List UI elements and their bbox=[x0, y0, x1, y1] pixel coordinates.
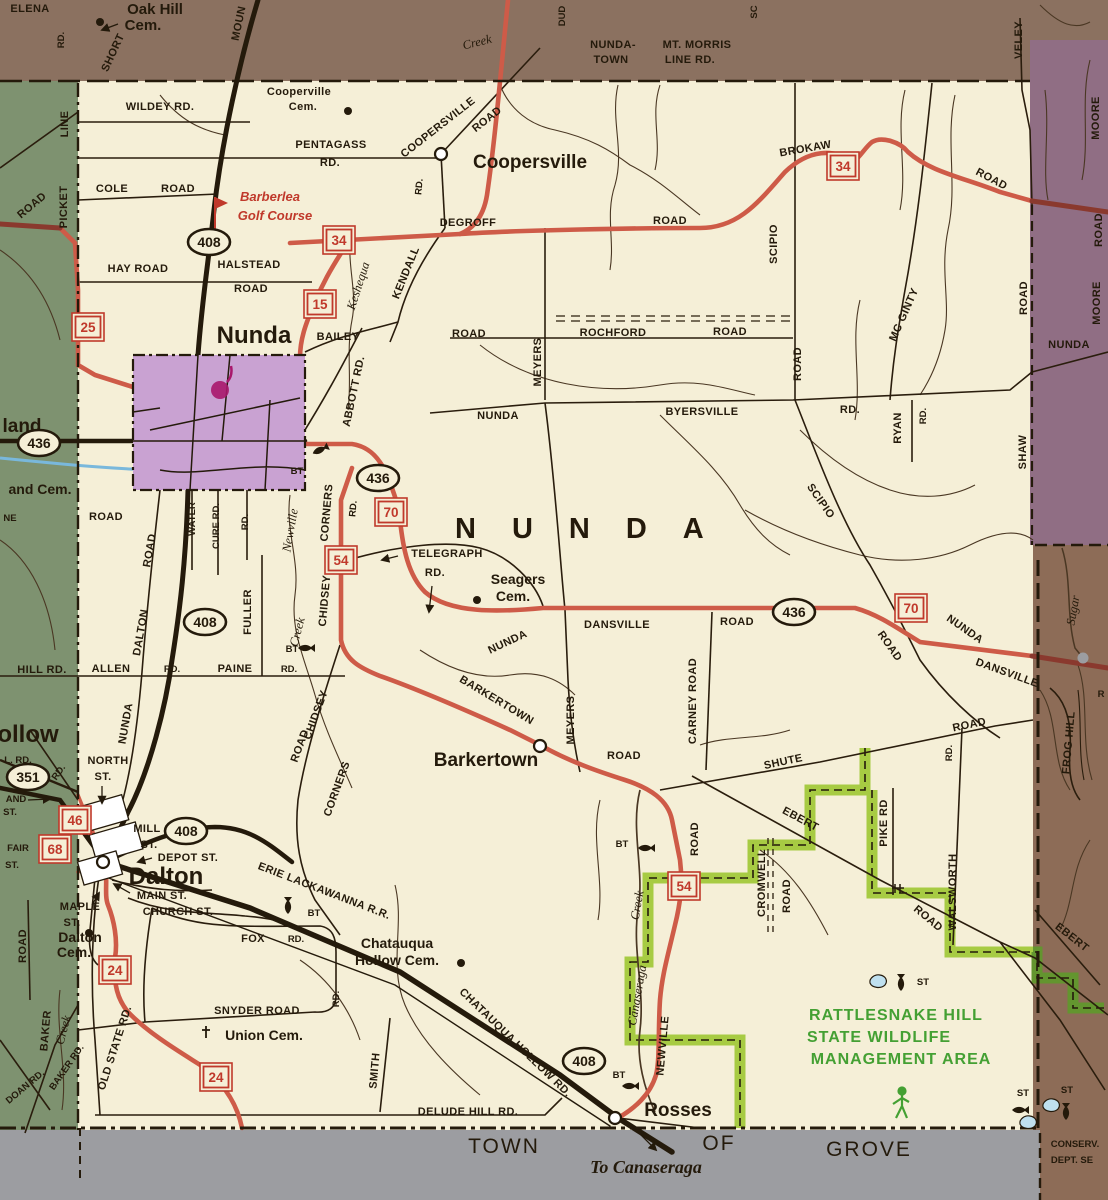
map-label-road: ROAD bbox=[792, 347, 804, 381]
map-label-union-cem: Union Cem. bbox=[225, 1027, 303, 1043]
map-label-allen: ALLEN bbox=[92, 663, 131, 675]
map-label-rd: RD. bbox=[281, 664, 297, 675]
shield-number: 408 bbox=[197, 234, 221, 250]
shield-number: 46 bbox=[67, 813, 83, 828]
route-shield-25: 25 bbox=[72, 313, 104, 341]
map-label-dansville: DANSVILLE bbox=[584, 619, 650, 631]
map-label-nunda: NUNDA bbox=[477, 410, 519, 422]
map-label-road: ROAD bbox=[161, 183, 195, 195]
map-label-dalton: Dalton bbox=[129, 863, 204, 890]
map-canvas: ELENARD.Oak HillCem.SHORTMOUNCreekDUDNUN… bbox=[0, 0, 1108, 1200]
map-label-veley: VELEY bbox=[1013, 21, 1025, 59]
region-east-brown bbox=[1033, 545, 1108, 1133]
map-label-scipio: SCIPIO bbox=[768, 224, 780, 264]
pond-icon bbox=[1043, 1099, 1059, 1112]
map-label-walsworth: WALSWORTH bbox=[947, 854, 959, 931]
map-label-fox: FOX bbox=[241, 933, 265, 945]
shield-number: 70 bbox=[383, 505, 398, 520]
map-label-north: NORTH bbox=[87, 755, 128, 767]
map-label-road: ROAD bbox=[234, 283, 268, 295]
route-shield-408: 408 bbox=[184, 609, 226, 635]
map-label-and: AND bbox=[6, 794, 27, 805]
map-label-road: ROAD bbox=[713, 326, 747, 338]
map-label-road: ROAD bbox=[1093, 213, 1105, 247]
map-label-road: ROAD bbox=[1018, 281, 1030, 315]
map-label-town: TOWN bbox=[593, 54, 628, 66]
map-label-dud: DUD bbox=[557, 6, 568, 27]
map-label-dalton: Dalton bbox=[58, 929, 102, 945]
circle-icon bbox=[435, 148, 447, 160]
nunda-town-map: ELENARD.Oak HillCem.SHORTMOUNCreekDUDNUN… bbox=[0, 0, 1108, 1200]
map-label-line: LINE bbox=[59, 111, 71, 138]
map-label-oak-hill: Oak Hill bbox=[127, 1, 183, 18]
route-shield-436: 436 bbox=[773, 599, 815, 625]
map-label-st: ST. bbox=[3, 807, 17, 818]
map-label-rd: RD. bbox=[164, 664, 180, 675]
map-label-bt: BT bbox=[291, 466, 304, 477]
map-label-moore: MOORE bbox=[1090, 96, 1102, 140]
map-label-st: ST. bbox=[94, 771, 111, 783]
map-label-cure-rd: CURE RD. bbox=[211, 503, 222, 549]
map-label-sc: SC bbox=[749, 5, 760, 18]
map-label-golf-course: Golf Course bbox=[238, 208, 312, 223]
map-label-moore: MOORE bbox=[1091, 281, 1103, 325]
route-shield-68: 68 bbox=[39, 835, 71, 863]
shield-number: 34 bbox=[331, 233, 347, 248]
map-label-nunda: NUNDA bbox=[1048, 339, 1090, 351]
map-label-rd: RD. bbox=[331, 991, 342, 1007]
map-label-degroff: DEGROFF bbox=[440, 217, 497, 229]
map-label-fair: FAIR bbox=[7, 843, 29, 854]
map-label-barberlea: Barberlea bbox=[240, 189, 300, 204]
map-label-rd: RD. bbox=[840, 404, 860, 416]
map-label-rd: RD. bbox=[425, 567, 445, 579]
map-label-st: ST bbox=[1061, 1085, 1073, 1096]
shield-number: 24 bbox=[107, 963, 123, 978]
map-label-bt: BT bbox=[286, 644, 299, 655]
route-shield-24: 24 bbox=[99, 956, 131, 984]
map-label-picket: PICKET bbox=[58, 186, 70, 229]
map-label-rosses: Rosses bbox=[644, 1100, 712, 1121]
map-label-conserv: CONSERV. bbox=[1051, 1139, 1100, 1150]
map-label-seagers: Seagers bbox=[491, 571, 546, 587]
map-label-state-wildlife: STATE WILDLIFE bbox=[807, 1029, 951, 1046]
map-label-road: ROAD bbox=[89, 511, 123, 523]
map-label-paine: PAINE bbox=[218, 663, 253, 675]
map-label-hill-rd: HILL RD. bbox=[17, 664, 66, 676]
shield-number: 70 bbox=[903, 601, 918, 616]
map-label-mill: MILL bbox=[133, 823, 160, 835]
shield-number: 68 bbox=[47, 842, 63, 857]
map-label-rd: RD. bbox=[918, 408, 929, 424]
map-label-bt: BT bbox=[308, 908, 321, 919]
route-shield-46: 46 bbox=[59, 806, 91, 834]
map-label-nunda: NUNDA bbox=[455, 513, 740, 545]
route-shield-24: 24 bbox=[200, 1063, 232, 1091]
route-shield-34: 34 bbox=[827, 152, 859, 180]
map-label-road: ROAD bbox=[653, 215, 687, 227]
shield-number: 25 bbox=[80, 320, 96, 335]
region-northeast-corner bbox=[1022, 0, 1108, 44]
map-label-town: TOWN bbox=[468, 1135, 540, 1158]
circle-icon bbox=[609, 1112, 621, 1124]
map-label-barkertown: Barkertown bbox=[434, 750, 539, 771]
map-label-rochford: ROCHFORD bbox=[580, 327, 647, 339]
circle-icon bbox=[97, 856, 109, 868]
map-label-nunda: NUNDA- bbox=[590, 39, 636, 51]
map-label-cem: Cem. bbox=[57, 944, 91, 960]
map-label-hollow-cem: Hollow Cem. bbox=[355, 952, 439, 968]
map-label-rd: RD. bbox=[347, 500, 359, 517]
map-label-rd: RD. bbox=[240, 514, 251, 530]
map-label-pentagass: PENTAGASS bbox=[295, 139, 366, 151]
route-shield-436: 436 bbox=[357, 465, 399, 491]
map-label-halstead: HALSTEAD bbox=[217, 259, 280, 271]
map-label-road: ROAD bbox=[17, 929, 29, 963]
route-shield-34: 34 bbox=[323, 226, 355, 254]
map-label-road: ROAD bbox=[720, 616, 754, 628]
route-shield-408: 408 bbox=[188, 229, 230, 255]
map-label-road: ROAD bbox=[689, 822, 701, 856]
map-label-and-cem: and Cem. bbox=[8, 481, 71, 497]
map-label-rattlesnake-hill: RATTLESNAKE HILL bbox=[809, 1007, 983, 1024]
pond-icon bbox=[870, 975, 886, 988]
shield-number: 436 bbox=[366, 470, 390, 486]
map-label-rd: RD. bbox=[56, 32, 67, 48]
map-label-road: ROAD bbox=[781, 879, 793, 913]
dot-icon bbox=[457, 959, 465, 967]
map-label-delude-hill-rd: DELUDE HILL RD. bbox=[418, 1106, 519, 1118]
map-label-main-st: MAIN ST. bbox=[137, 890, 187, 902]
map-label-st: ST. bbox=[5, 860, 19, 871]
map-label-chatauqua: Chatauqua bbox=[361, 935, 434, 951]
map-label-ryan: RYAN bbox=[892, 412, 904, 443]
map-label-of: OF bbox=[702, 1132, 735, 1155]
graydot-icon bbox=[1078, 653, 1089, 664]
map-label-rd: RD. bbox=[944, 745, 955, 761]
dot-icon bbox=[96, 18, 104, 26]
map-label-telegraph: TELEGRAPH bbox=[411, 548, 482, 560]
map-label-pike-rd: PIKE RD bbox=[878, 799, 890, 846]
route-shield-54: 54 bbox=[325, 546, 357, 574]
map-label-rd: RD. bbox=[413, 178, 425, 195]
shield-number: 408 bbox=[174, 823, 198, 839]
map-label-grove: GROVE bbox=[826, 1138, 912, 1161]
map-label-mt-morris: MT. MORRIS bbox=[663, 39, 732, 51]
shield-number: 34 bbox=[835, 159, 851, 174]
route-shield-70: 70 bbox=[375, 498, 407, 526]
pond-icon bbox=[1020, 1116, 1036, 1129]
map-label-cem: Cem. bbox=[496, 588, 530, 604]
map-label-ollow: ollow bbox=[0, 721, 59, 748]
map-label-cem: Cem. bbox=[125, 17, 162, 34]
map-label-road: ROAD bbox=[452, 328, 486, 340]
region-west-green bbox=[0, 81, 78, 1133]
map-label-cromwell: CROMWELL bbox=[756, 849, 768, 917]
map-label-bailey: BAILEY bbox=[317, 331, 360, 343]
map-label-fuller: FULLER bbox=[242, 589, 254, 635]
map-label-snyder-road: SNYDER ROAD bbox=[214, 1005, 300, 1017]
route-shield-15: 15 bbox=[304, 290, 336, 318]
shield-number: 54 bbox=[676, 879, 692, 894]
map-label-bt: BT bbox=[613, 1070, 626, 1081]
map-label-st: ST. bbox=[63, 917, 80, 929]
shield-number: 24 bbox=[208, 1070, 224, 1085]
map-label-to-canaseraga: To Canaseraga bbox=[590, 1157, 702, 1177]
route-shield-351: 351 bbox=[7, 764, 49, 790]
route-shield-70: 70 bbox=[895, 594, 927, 622]
shield-number: 54 bbox=[333, 553, 349, 568]
route-shield-408: 408 bbox=[165, 818, 207, 844]
map-label-hay-road: HAY ROAD bbox=[108, 263, 169, 275]
map-label-water: WATER bbox=[187, 502, 198, 536]
map-label-st: ST bbox=[1017, 1088, 1029, 1099]
map-label-line-rd: LINE RD. bbox=[665, 54, 715, 66]
map-label-maple: MAPLE bbox=[60, 901, 101, 913]
map-label-cole: COLE bbox=[96, 183, 128, 195]
map-label-dept-se: DEPT. SE bbox=[1051, 1155, 1093, 1166]
map-label-nunda: Nunda bbox=[217, 322, 292, 349]
map-label-shaw: SHAW bbox=[1017, 434, 1029, 469]
shield-number: 436 bbox=[27, 435, 51, 451]
shield-number: 351 bbox=[16, 769, 40, 785]
map-label-cem: Cem. bbox=[289, 101, 318, 113]
map-label-church-st: CHURCH ST. bbox=[143, 906, 214, 918]
map-label-cooperville: Cooperville bbox=[267, 86, 331, 98]
map-label-byersville: BYERSVILLE bbox=[665, 406, 738, 418]
map-label-st: ST bbox=[917, 977, 929, 988]
map-label-elena: ELENA bbox=[10, 3, 49, 15]
map-label-coopersville: Coopersville bbox=[473, 152, 587, 173]
dot-icon bbox=[473, 596, 481, 604]
route-shield-408: 408 bbox=[563, 1048, 605, 1074]
map-label-bt: BT bbox=[616, 839, 629, 850]
shield-number: 15 bbox=[312, 297, 328, 312]
map-label-management-area: MANAGEMENT AREA bbox=[811, 1051, 992, 1068]
map-label-carney-road: CARNEY ROAD bbox=[687, 658, 699, 744]
map-label-ne: NE bbox=[3, 513, 16, 524]
route-shield-436: 436 bbox=[18, 430, 60, 456]
map-label-st: ST. bbox=[140, 839, 157, 851]
map-label-rd: RD. bbox=[288, 934, 304, 945]
dot-icon bbox=[344, 107, 352, 115]
map-label-wildey-rd: WILDEY RD. bbox=[126, 101, 195, 113]
shield-number: 436 bbox=[782, 604, 806, 620]
map-label-rd: RD. bbox=[320, 157, 340, 169]
map-label-meyers: MEYERS bbox=[565, 696, 577, 745]
map-label-meyers: MEYERS bbox=[532, 338, 544, 387]
shield-number: 408 bbox=[193, 614, 217, 630]
map-label-r: R bbox=[1098, 689, 1105, 700]
route-shield-54: 54 bbox=[668, 872, 700, 900]
map-label-road: ROAD bbox=[607, 750, 641, 762]
shield-number: 408 bbox=[572, 1053, 596, 1069]
